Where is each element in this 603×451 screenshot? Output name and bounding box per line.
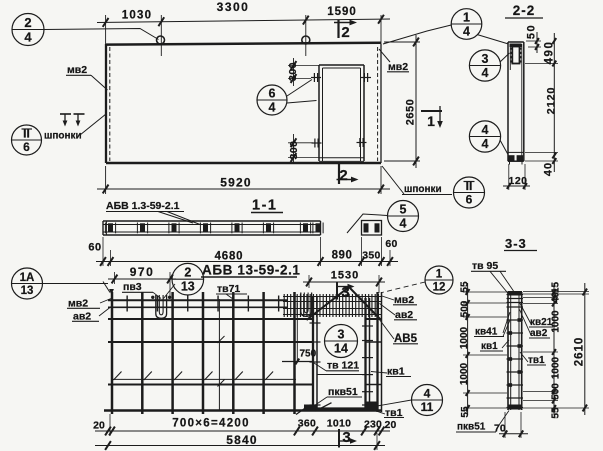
svg-text:ав2: ав2: [530, 328, 548, 339]
svg-text:кв21: кв21: [530, 317, 553, 328]
svg-text:4: 4: [400, 217, 407, 231]
svg-text:120: 120: [508, 175, 527, 187]
svg-text:2: 2: [341, 24, 349, 41]
svg-text:12: 12: [433, 282, 446, 294]
svg-text:3: 3: [338, 328, 345, 342]
svg-text:3: 3: [341, 284, 349, 301]
svg-text:55: 55: [460, 281, 471, 293]
svg-text:АВ5: АВ5: [394, 333, 418, 345]
svg-text:20: 20: [93, 420, 105, 432]
svg-text:6: 6: [23, 140, 30, 154]
svg-text:500: 500: [460, 300, 471, 317]
svg-text:55: 55: [460, 406, 471, 418]
svg-text:1590: 1590: [327, 6, 357, 18]
svg-text:700×6=4200: 700×6=4200: [172, 418, 250, 430]
svg-text:1-1: 1-1: [252, 198, 277, 214]
svg-text:4: 4: [482, 137, 489, 151]
svg-text:1000: 1000: [459, 362, 470, 385]
svg-text:2650: 2650: [405, 99, 417, 125]
svg-text:300: 300: [288, 140, 300, 159]
svg-text:мв2: мв2: [68, 298, 88, 310]
svg-text:40: 40: [551, 292, 562, 304]
svg-text:АБВ 13-59-2.1: АБВ 13-59-2.1: [202, 263, 301, 278]
svg-text:шпонки: шпонки: [404, 184, 442, 195]
svg-text:тв 121: тв 121: [327, 360, 359, 372]
svg-text:кв41: кв41: [475, 327, 498, 338]
svg-text:1А: 1А: [20, 272, 35, 284]
svg-text:3: 3: [342, 429, 350, 446]
svg-text:2120: 2120: [546, 87, 558, 115]
svg-text:1: 1: [463, 11, 470, 25]
svg-text:пкв51: пкв51: [457, 422, 486, 433]
svg-text:кв1: кв1: [481, 341, 498, 352]
svg-text:4: 4: [269, 101, 276, 115]
svg-text:4: 4: [424, 387, 431, 401]
svg-text:5: 5: [400, 203, 407, 217]
svg-text:50: 50: [526, 24, 538, 39]
svg-text:шпонки: шпонки: [44, 131, 82, 142]
svg-text:тв1: тв1: [528, 355, 545, 366]
svg-text:пв3: пв3: [123, 281, 142, 293]
svg-text:40: 40: [543, 162, 555, 176]
svg-text:70: 70: [494, 423, 506, 435]
svg-text:490: 490: [544, 41, 556, 65]
svg-text:970: 970: [130, 265, 155, 279]
svg-text:мв2: мв2: [394, 294, 414, 306]
svg-text:55: 55: [551, 407, 562, 419]
svg-text:4: 4: [463, 25, 470, 39]
svg-text:АБВ 1.3-59-2.1: АБВ 1.3-59-2.1: [106, 200, 180, 212]
svg-text:3300: 3300: [217, 0, 250, 14]
svg-text:1030: 1030: [122, 10, 152, 22]
svg-text:мв2: мв2: [67, 64, 87, 76]
svg-text:750: 750: [300, 349, 317, 360]
svg-text:14: 14: [334, 342, 348, 356]
svg-text:2-2: 2-2: [513, 3, 536, 18]
svg-text:20: 20: [384, 419, 396, 431]
svg-text:11: 11: [421, 400, 434, 414]
svg-text:ав2: ав2: [73, 311, 91, 323]
svg-text:890: 890: [332, 250, 353, 262]
svg-text:13: 13: [21, 285, 34, 297]
svg-text:350: 350: [362, 250, 380, 262]
svg-text:500: 500: [551, 383, 562, 400]
svg-text:2: 2: [184, 266, 191, 280]
svg-text:пкв51: пкв51: [328, 386, 358, 398]
svg-text:230: 230: [364, 419, 382, 431]
svg-text:300: 300: [287, 62, 299, 81]
svg-text:1530: 1530: [331, 270, 359, 282]
svg-text:тв71: тв71: [217, 283, 240, 295]
svg-text:60: 60: [385, 238, 397, 250]
svg-text:5920: 5920: [220, 176, 252, 190]
svg-text:2: 2: [339, 167, 347, 184]
svg-text:5840: 5840: [226, 433, 258, 447]
svg-text:60: 60: [88, 242, 101, 254]
svg-text:мв2: мв2: [388, 61, 408, 73]
svg-text:1000: 1000: [551, 356, 562, 379]
svg-text:4: 4: [482, 66, 489, 80]
svg-text:3: 3: [482, 52, 489, 66]
svg-text:2: 2: [24, 15, 31, 30]
svg-text:тв 95: тв 95: [472, 260, 498, 272]
svg-text:4680: 4680: [215, 251, 244, 263]
svg-text:4: 4: [24, 30, 32, 45]
svg-text:кв1: кв1: [387, 366, 405, 378]
svg-text:3-3: 3-3: [505, 236, 527, 251]
svg-text:4: 4: [482, 123, 489, 137]
svg-text:1010: 1010: [327, 418, 352, 430]
svg-text:1: 1: [436, 269, 443, 281]
svg-text:13: 13: [181, 280, 195, 294]
svg-text:ав2: ав2: [395, 309, 413, 321]
svg-text:6: 6: [269, 87, 276, 101]
svg-text:1: 1: [427, 113, 435, 129]
svg-text:6: 6: [466, 193, 473, 207]
svg-text:2610: 2610: [574, 337, 586, 367]
svg-text:360: 360: [298, 418, 316, 430]
svg-text:1000: 1000: [459, 326, 470, 349]
